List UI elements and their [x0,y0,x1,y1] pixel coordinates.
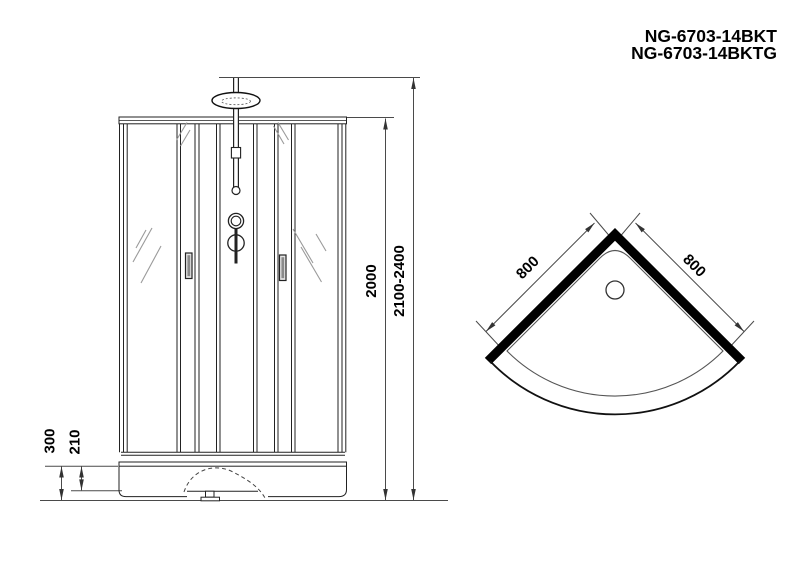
shower-cabin-diagram: NG-6703-14BKT NG-6703-14BKTG 2000 2100-2… [0,0,800,566]
corner-glass-walls [488,234,742,361]
cabin-frame [119,117,347,501]
dim-label-glass-height: 2000 [363,264,380,297]
shower-front-view: 2000 2100-2400 300 210 [40,78,448,501]
glass-reflection-marks [133,123,326,284]
drain-hole [606,281,624,299]
dim-label-base-height: 300 [42,428,59,453]
pole-connector [231,148,240,159]
front-extension-lines [40,78,448,501]
dim-label-800-left: 800 [513,253,543,283]
shower-top-view: 800 800 [476,213,754,414]
base-skirt [119,466,347,501]
model-title-block: NG-6703-14BKT NG-6703-14BKTG [631,26,777,63]
bottom-track [121,452,345,455]
glass-panel-lines [120,124,346,453]
shower-column [212,78,260,264]
tray-rim [119,462,347,466]
base-arch-cutout [184,468,265,498]
dim-label-total-height: 2100-2400 [391,245,408,317]
hand-shower-head [232,187,240,195]
rain-shower-head [212,93,260,109]
dim-label-800-right: 800 [679,251,709,281]
adjustable-foot-base [201,497,220,501]
technical-drawing-page: NG-6703-14BKT NG-6703-14BKTG 2000 2100-2… [0,0,800,566]
model-name-secondary: NG-6703-14BKTG [631,43,777,63]
dim-label-tray-height: 210 [67,429,84,454]
adjustable-foot-stem [206,491,215,497]
